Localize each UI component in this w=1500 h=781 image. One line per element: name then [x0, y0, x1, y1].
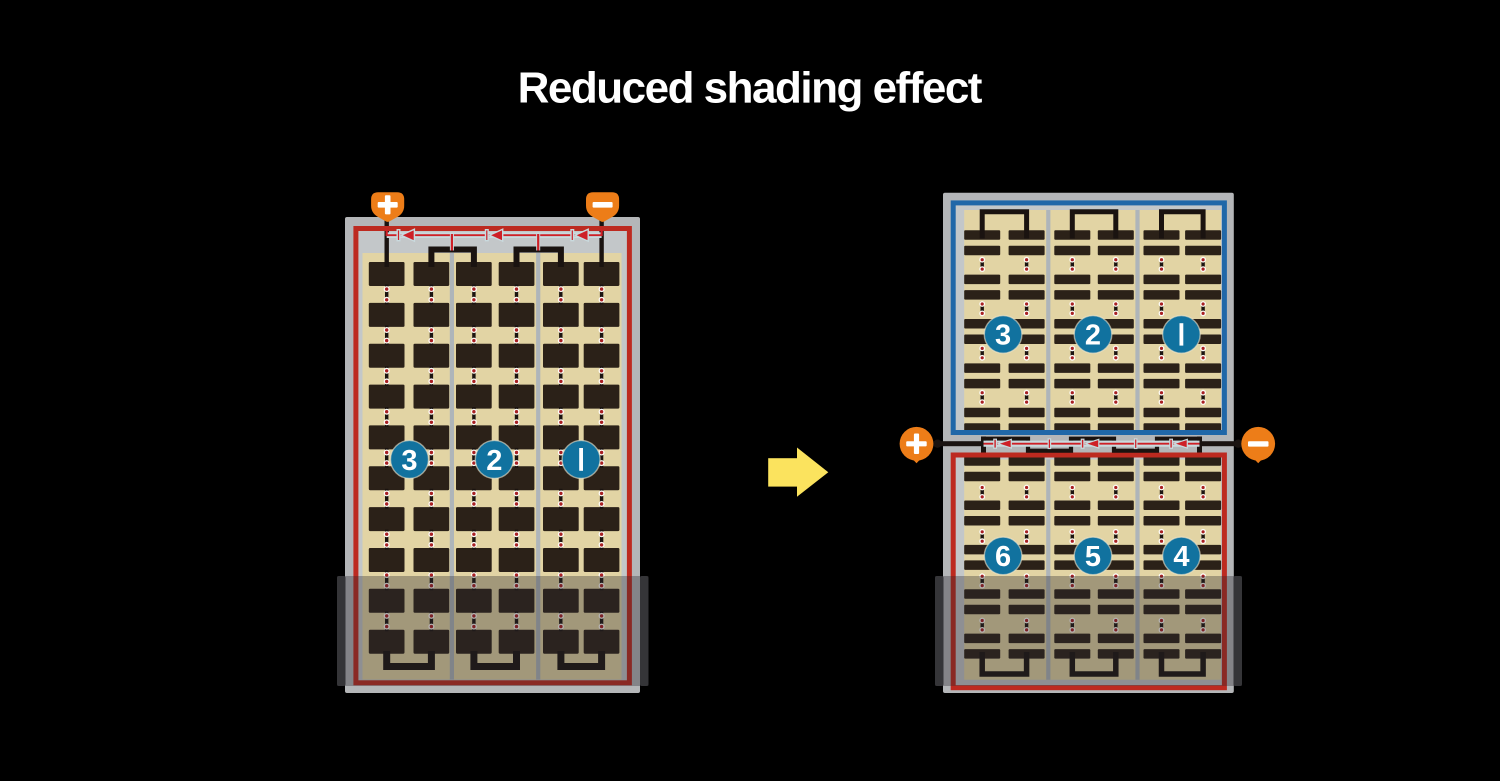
svg-text:2: 2 [486, 445, 502, 477]
svg-text:Reduced shading effect: Reduced shading effect [518, 64, 983, 113]
svg-text:5: 5 [1085, 541, 1101, 573]
svg-text:3: 3 [401, 445, 417, 477]
svg-text:2: 2 [1085, 320, 1101, 352]
svg-text:6: 6 [995, 541, 1011, 573]
svg-text:3: 3 [995, 320, 1011, 352]
svg-text:4: 4 [1173, 541, 1189, 573]
